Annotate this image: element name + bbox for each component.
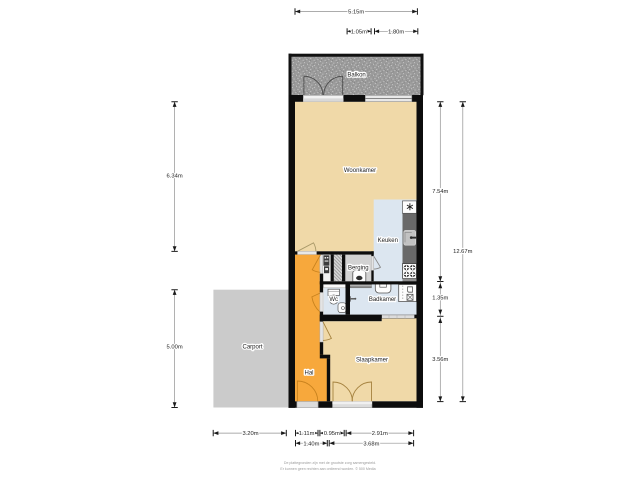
svg-text:Carport: Carport	[242, 345, 262, 351]
svg-text:Hal: Hal	[304, 370, 313, 376]
svg-text:5.00m: 5.00m	[167, 345, 183, 351]
svg-text:2.91m: 2.91m	[372, 431, 388, 437]
svg-text:12.67m: 12.67m	[453, 249, 473, 255]
svg-text:De plattegronden zijn met de g: De plattegronden zijn met de grootste zo…	[284, 461, 376, 465]
svg-text:3.68m: 3.68m	[363, 441, 379, 447]
svg-text:1.35m: 1.35m	[432, 295, 448, 301]
svg-text:Balkon: Balkon	[347, 72, 365, 78]
svg-text:Berging: Berging	[348, 265, 369, 271]
svg-text:5.15m: 5.15m	[348, 10, 364, 16]
svg-text:Woonkamer: Woonkamer	[344, 168, 376, 174]
svg-text:Er kunnen geen rechten aan ont: Er kunnen geen rechten aan ontleend word…	[280, 467, 375, 471]
svg-text:6.34m: 6.34m	[167, 174, 183, 180]
svg-text:1.05m: 1.05m	[351, 29, 367, 35]
svg-text:3.20m: 3.20m	[242, 431, 258, 437]
svg-text:1.80m: 1.80m	[388, 29, 404, 35]
svg-text:0.95m: 0.95m	[324, 431, 340, 437]
svg-text:1.11m: 1.11m	[299, 431, 315, 437]
svg-text:Badkamer: Badkamer	[369, 297, 396, 303]
svg-text:Slaapkamer: Slaapkamer	[356, 358, 388, 364]
svg-text:Keuken: Keuken	[378, 238, 398, 244]
svg-text:1.40m: 1.40m	[303, 441, 319, 447]
svg-text:7.54m: 7.54m	[432, 189, 448, 195]
svg-text:Wc: Wc	[329, 297, 338, 303]
svg-text:3.56m: 3.56m	[432, 357, 448, 363]
